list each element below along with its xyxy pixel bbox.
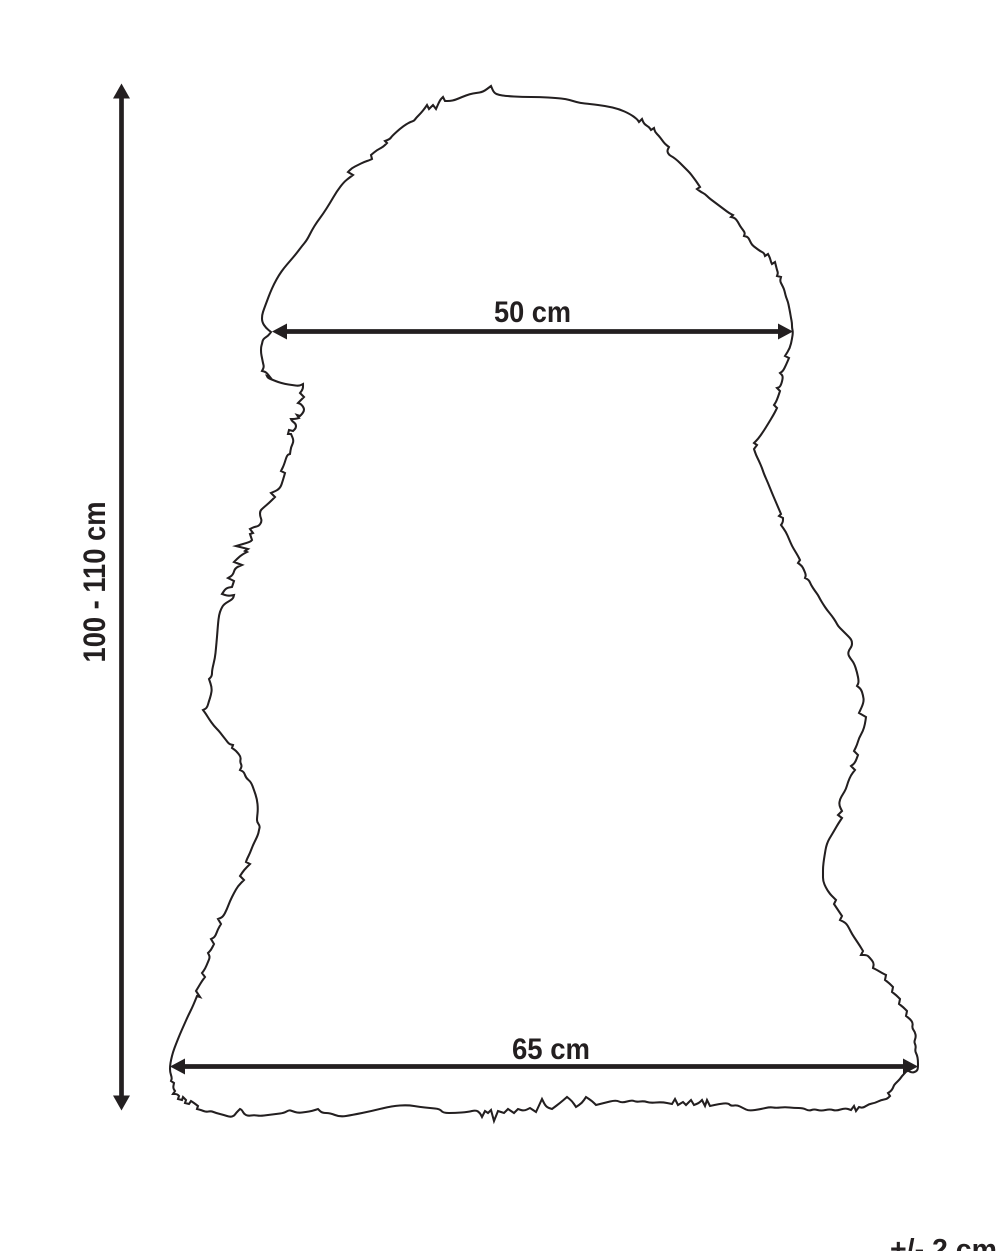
svg-text:65 cm: 65 cm	[512, 1033, 590, 1066]
svg-text:100 - 110 cm: 100 - 110 cm	[76, 502, 112, 663]
svg-text:50 cm: 50 cm	[494, 296, 571, 329]
svg-text:+/- 2 cm: +/- 2 cm	[890, 1234, 997, 1251]
